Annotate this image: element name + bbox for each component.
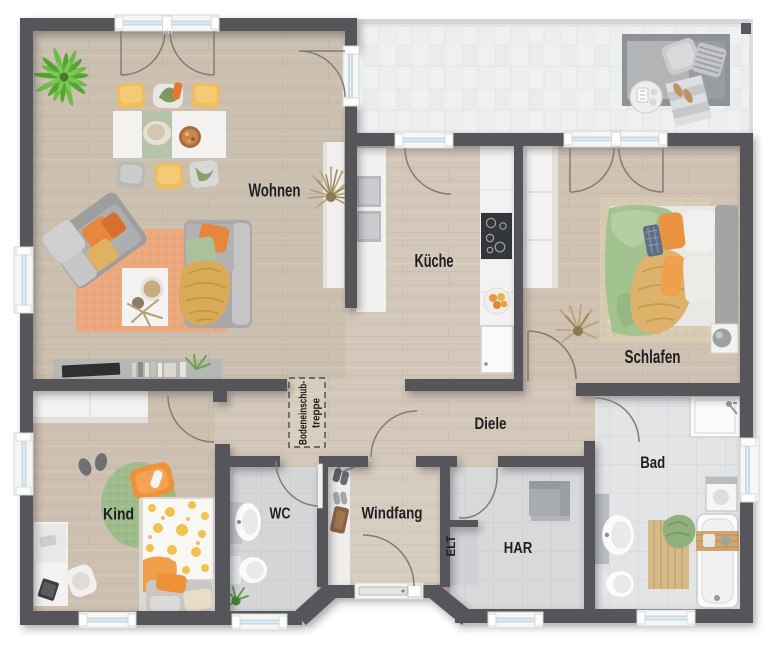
svg-text:Bodeneinschub-: Bodeneinschub-: [298, 381, 310, 445]
svg-text:WC: WC: [270, 506, 291, 523]
svg-text:Schlafen: Schlafen: [625, 347, 681, 367]
svg-text:ELT: ELT: [444, 535, 458, 557]
svg-text:treppe: treppe: [311, 398, 323, 428]
svg-text:Küche: Küche: [415, 251, 454, 271]
svg-text:Wohnen: Wohnen: [249, 181, 301, 201]
svg-text:Bad: Bad: [640, 453, 665, 472]
svg-text:HAR: HAR: [504, 540, 533, 557]
svg-text:Kind: Kind: [103, 505, 134, 524]
svg-text:Diele: Diele: [475, 414, 507, 433]
svg-text:Windfang: Windfang: [362, 504, 423, 523]
